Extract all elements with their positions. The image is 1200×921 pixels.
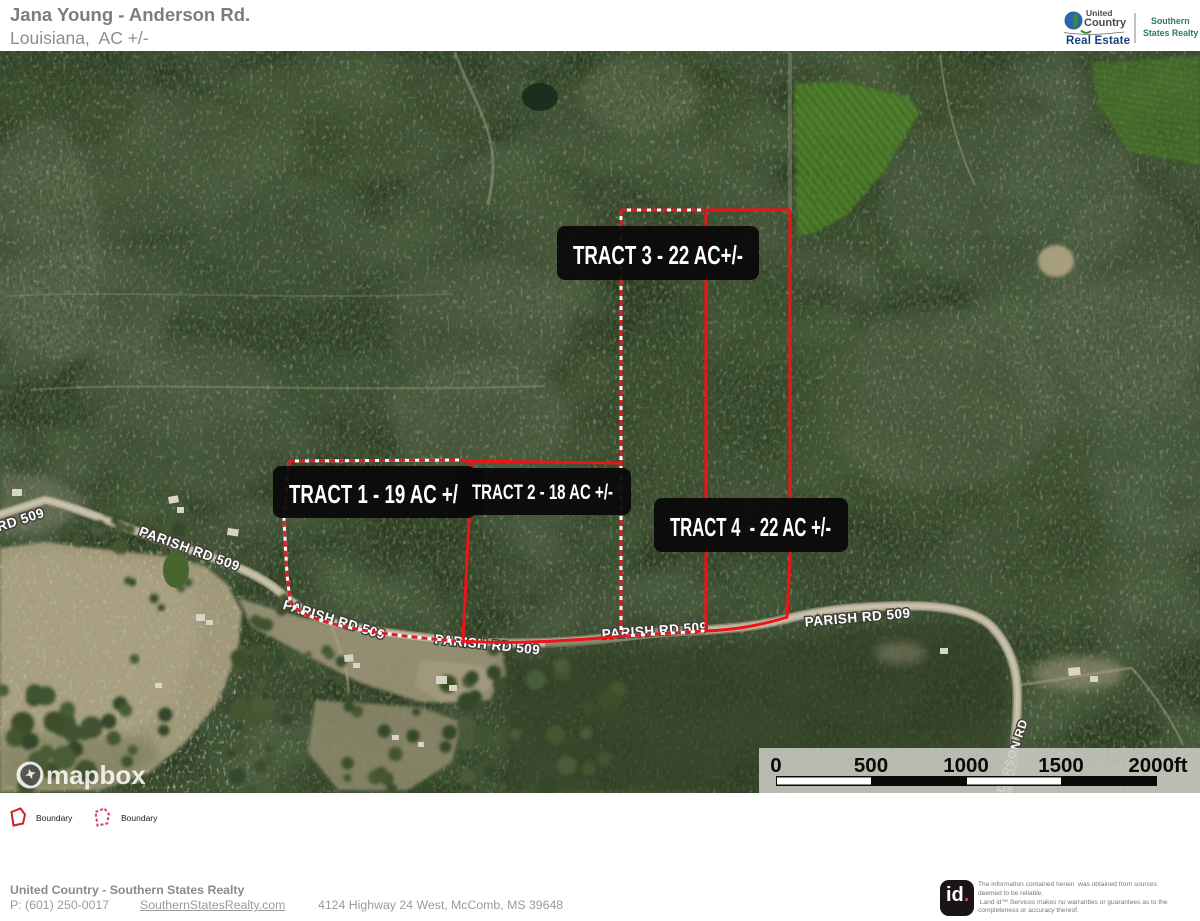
svg-text:States Realty: States Realty (1143, 28, 1198, 38)
svg-text:TRACT 2 - 18 AC +/-: TRACT 2 - 18 AC +/- (472, 481, 613, 504)
svg-text:TRACT 4 - 22 AC +/-: TRACT 4 - 22 AC +/- (670, 512, 831, 542)
svg-text:1000: 1000 (943, 754, 989, 777)
svg-text:2000ft: 2000ft (1128, 754, 1187, 777)
svg-text:1500: 1500 (1038, 754, 1084, 777)
svg-text:500: 500 (854, 754, 888, 777)
svg-text:Southern: Southern (1151, 16, 1190, 26)
svg-text:TRACT 3 - 22 AC+/-: TRACT 3 - 22 AC+/- (573, 240, 743, 270)
svg-text:mapbox: mapbox (46, 760, 146, 790)
svg-text:Country: Country (1084, 17, 1127, 29)
svg-text:TRACT 1 - 19 AC +/: TRACT 1 - 19 AC +/ (289, 479, 458, 509)
svg-text:Real Estate: Real Estate (1066, 35, 1130, 47)
svg-text:0: 0 (770, 754, 781, 777)
